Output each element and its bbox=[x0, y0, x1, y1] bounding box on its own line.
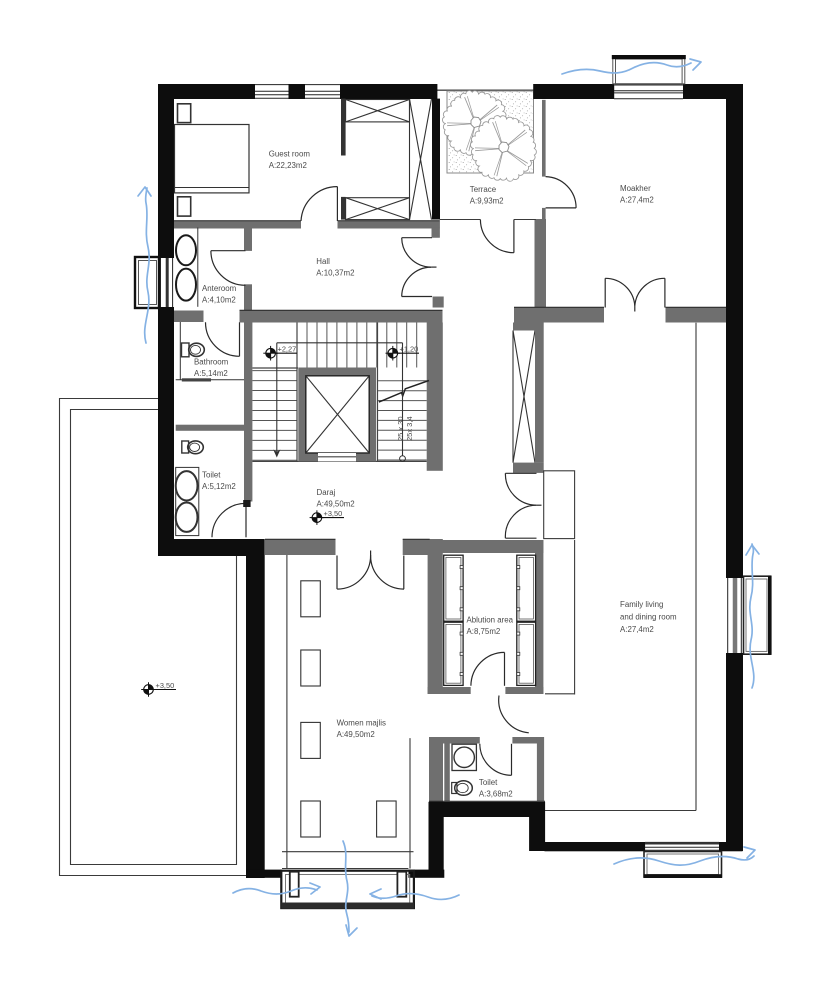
svg-text:A:4,10m2: A:4,10m2 bbox=[202, 296, 236, 305]
svg-text:Moakher: Moakher bbox=[620, 184, 651, 193]
svg-text:+3,50: +3,50 bbox=[156, 681, 175, 690]
svg-text:A:5,12m2: A:5,12m2 bbox=[202, 482, 236, 491]
svg-text:Toilet: Toilet bbox=[479, 778, 498, 787]
svg-text:Guest room: Guest room bbox=[269, 150, 311, 159]
svg-text:A:9,93m2: A:9,93m2 bbox=[470, 197, 504, 206]
svg-text:A:5,14m2: A:5,14m2 bbox=[194, 369, 228, 378]
svg-text:A:49,50m2: A:49,50m2 bbox=[317, 500, 355, 509]
svg-text:+1,20: +1,20 bbox=[400, 345, 419, 354]
svg-text:A:22,23m2: A:22,23m2 bbox=[269, 161, 307, 170]
svg-text:25x 3,4: 25x 3,4 bbox=[405, 416, 414, 441]
svg-text:Women majlis: Women majlis bbox=[337, 719, 386, 728]
svg-text:+3,50: +3,50 bbox=[324, 509, 343, 518]
svg-text:Family living: Family living bbox=[620, 600, 663, 609]
svg-text:Anteroom: Anteroom bbox=[202, 284, 237, 293]
svg-text:Daraj: Daraj bbox=[317, 488, 336, 497]
svg-text:A:27,4m2: A:27,4m2 bbox=[620, 625, 654, 634]
svg-text:A:3,68m2: A:3,68m2 bbox=[479, 790, 513, 799]
svg-text:A:27,4m2: A:27,4m2 bbox=[620, 196, 654, 205]
svg-text:A:8,75m2: A:8,75m2 bbox=[467, 627, 501, 636]
svg-text:25 x 30: 25 x 30 bbox=[396, 416, 405, 441]
svg-text:A:49,50m2: A:49,50m2 bbox=[337, 730, 375, 739]
svg-text:Bathroom: Bathroom bbox=[194, 358, 229, 367]
svg-text:Hall: Hall bbox=[316, 257, 330, 266]
svg-text:A:10,37m2: A:10,37m2 bbox=[316, 269, 354, 278]
svg-text:Terrace: Terrace bbox=[470, 185, 497, 194]
svg-text:Ablution area: Ablution area bbox=[467, 616, 514, 625]
svg-text:Toilet: Toilet bbox=[202, 471, 221, 480]
svg-text:+2,27: +2,27 bbox=[278, 345, 297, 354]
svg-text:and dining room: and dining room bbox=[620, 613, 677, 622]
